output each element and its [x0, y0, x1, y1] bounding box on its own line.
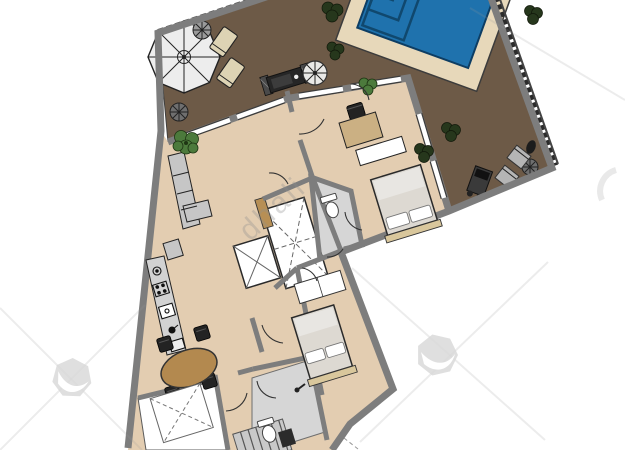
neighbor-unit-cut — [344, 438, 358, 449]
outdoor-side-table — [303, 61, 327, 85]
planter-wheel — [170, 103, 188, 121]
outdoor-plant — [525, 6, 543, 25]
floor-plan-screenshot: dhali — [0, 0, 625, 450]
floor-plan: dhali — [0, 0, 625, 450]
indoor-plant — [173, 131, 199, 155]
watermark-logo — [418, 335, 458, 376]
watermark-letter-fragment — [600, 170, 616, 200]
